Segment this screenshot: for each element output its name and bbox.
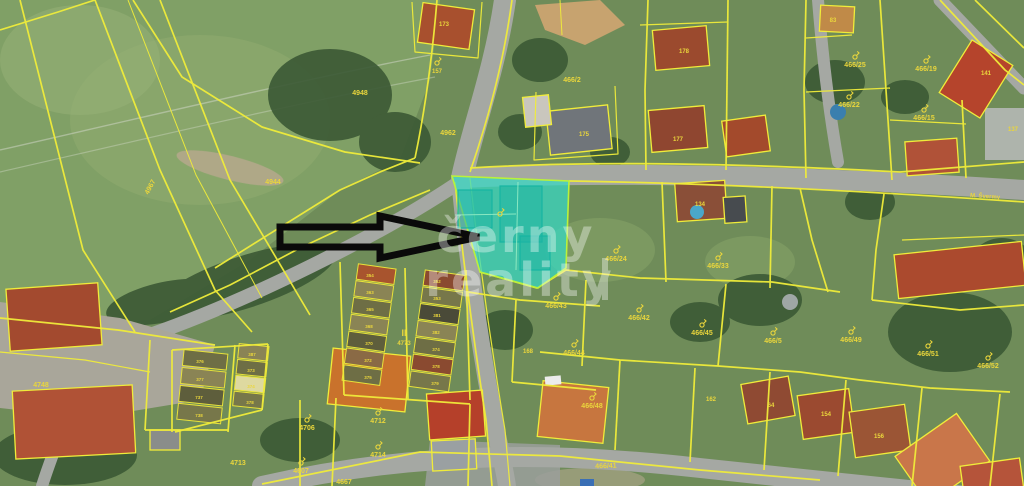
parcel-label: 178 — [679, 49, 690, 55]
svg-text:737: 737 — [195, 395, 203, 400]
svg-text:379: 379 — [431, 381, 439, 386]
svg-text:162: 162 — [706, 397, 717, 403]
svg-text:382: 382 — [432, 330, 440, 335]
pond — [782, 294, 798, 310]
building-roof — [150, 430, 180, 450]
svg-text:157: 157 — [432, 69, 443, 75]
building-roof — [431, 439, 477, 471]
parcel-label: 466/41 — [595, 463, 617, 471]
parcel-label: 154 — [821, 412, 832, 418]
svg-text:137: 137 — [1008, 127, 1019, 133]
building-roof — [12, 385, 135, 459]
parcel-label: 374 — [247, 384, 255, 389]
parcel-label: 4948 — [352, 90, 368, 97]
svg-text:466/42: 466/42 — [628, 315, 650, 322]
svg-text:466/51: 466/51 — [917, 351, 939, 358]
parcel-label: 381 — [433, 313, 441, 318]
parcel-label: 373 — [247, 368, 255, 373]
svg-text:381: 381 — [433, 313, 441, 318]
svg-text:373: 373 — [247, 368, 255, 373]
svg-text:466/15: 466/15 — [913, 115, 935, 122]
svg-text:4712: 4712 — [370, 418, 386, 425]
svg-text:375: 375 — [364, 375, 372, 380]
building-roof — [426, 390, 485, 440]
svg-text:466/33: 466/33 — [707, 263, 729, 270]
svg-text:378: 378 — [432, 364, 440, 369]
svg-text:466/44: 466/44 — [563, 350, 585, 357]
svg-text:363: 363 — [366, 290, 374, 295]
parcel-label: 374 — [432, 347, 440, 352]
parcel-label: 175 — [579, 132, 590, 138]
svg-text:175: 175 — [579, 132, 590, 138]
watermark-line2: reality — [425, 253, 614, 307]
svg-text:4607: 4607 — [293, 468, 309, 475]
svg-text:II: II — [401, 328, 406, 338]
svg-text:466/48: 466/48 — [581, 403, 603, 410]
svg-text:4773: 4773 — [397, 341, 411, 347]
svg-text:4706: 4706 — [299, 425, 315, 432]
parcel-label: 354 — [366, 273, 374, 278]
svg-text:4748: 4748 — [33, 382, 49, 389]
svg-text:177: 177 — [673, 137, 684, 143]
parcel-label: 168 — [523, 349, 534, 355]
parcel-label: 379 — [431, 381, 439, 386]
parcel-label: 137 — [1008, 127, 1019, 133]
parcel-label: 134 — [695, 202, 706, 208]
watermark: černy reality — [425, 209, 614, 307]
svg-text:173: 173 — [439, 22, 450, 28]
svg-text:738: 738 — [195, 413, 203, 418]
parcel-label: 370 — [365, 341, 373, 346]
svg-text:64: 64 — [768, 403, 775, 409]
svg-text:466/41: 466/41 — [595, 463, 617, 471]
building-roof — [537, 381, 608, 444]
parcel-label: 64 — [768, 403, 775, 409]
parcel-label: 83 — [830, 18, 837, 24]
parcel-label: 4944 — [265, 179, 281, 186]
svg-text:4948: 4948 — [352, 90, 368, 97]
building-roof — [652, 26, 709, 71]
parcel-label: 368 — [365, 324, 373, 329]
svg-text:377: 377 — [196, 377, 204, 382]
svg-text:156: 156 — [874, 434, 885, 440]
parcel-label: 376 — [196, 359, 204, 364]
svg-text:354: 354 — [366, 273, 374, 278]
svg-text:4714: 4714 — [370, 452, 386, 459]
parcel-label: 4667 — [336, 479, 352, 486]
svg-text:178: 178 — [679, 49, 690, 55]
building-roof — [648, 106, 707, 153]
svg-text:4713: 4713 — [230, 460, 246, 467]
parcel-label: 738 — [195, 413, 203, 418]
building-roof — [6, 283, 102, 351]
parcel-label: 156 — [874, 434, 885, 440]
building-roof — [546, 105, 612, 155]
svg-text:378: 378 — [246, 400, 254, 405]
svg-text:154: 154 — [821, 412, 832, 418]
svg-text:466/19: 466/19 — [915, 66, 937, 73]
svg-text:374: 374 — [432, 347, 440, 352]
building-roof — [849, 404, 911, 457]
parcel-label: 173 — [439, 22, 450, 28]
cadastral-map[interactable]: 4948494449674962466/21731571751781778346… — [0, 0, 1024, 486]
svg-text:368: 368 — [365, 324, 373, 329]
svg-text:466/2: 466/2 — [563, 77, 581, 84]
svg-text:370: 370 — [365, 341, 373, 346]
svg-text:466/25: 466/25 — [844, 62, 866, 69]
parcel-label: 363 — [366, 290, 374, 295]
parcel-label: 466/2 — [563, 77, 581, 84]
parcel-label: 4773 — [397, 341, 411, 347]
watermark-bar — [602, 258, 608, 300]
parcel-label: 141 — [981, 71, 992, 77]
svg-text:466/45: 466/45 — [691, 330, 713, 337]
parcel-label: 378 — [432, 364, 440, 369]
parcel-label: 377 — [196, 377, 204, 382]
building-roof — [523, 95, 552, 128]
parcel-label: 177 — [673, 137, 684, 143]
parcel-label: 387 — [248, 352, 256, 357]
svg-text:4962: 4962 — [440, 130, 456, 137]
car — [580, 479, 594, 486]
svg-text:134: 134 — [695, 202, 706, 208]
parcel-label: 737 — [195, 395, 203, 400]
parcel-label: 4748 — [33, 382, 49, 389]
car — [545, 375, 562, 385]
svg-text:4667: 4667 — [336, 479, 352, 486]
svg-text:372: 372 — [364, 358, 372, 363]
svg-text:466/22: 466/22 — [838, 102, 860, 109]
svg-text:374: 374 — [247, 384, 255, 389]
parcel-label: 375 — [364, 375, 372, 380]
parcel-label: 365 — [366, 307, 374, 312]
svg-text:387: 387 — [248, 352, 256, 357]
parcel-label: 4713 — [230, 460, 246, 467]
svg-text:365: 365 — [366, 307, 374, 312]
parcel-label: II — [401, 328, 406, 338]
svg-text:141: 141 — [981, 71, 992, 77]
building-roof — [819, 5, 854, 33]
svg-text:4944: 4944 — [265, 179, 281, 186]
building-roof — [722, 115, 771, 157]
parcel-label: 4962 — [440, 130, 456, 137]
building-roof — [723, 196, 747, 223]
parcel-label: 382 — [432, 330, 440, 335]
svg-text:168: 168 — [523, 349, 534, 355]
svg-text:376: 376 — [196, 359, 204, 364]
svg-text:83: 83 — [830, 18, 837, 24]
svg-text:466/52: 466/52 — [977, 363, 999, 370]
svg-text:466/49: 466/49 — [840, 337, 862, 344]
parcel-label: 372 — [364, 358, 372, 363]
svg-text:466/5: 466/5 — [764, 338, 782, 345]
parcel-label: 378 — [246, 400, 254, 405]
parcel-label: 162 — [706, 397, 717, 403]
screenshot-root: 4948494449674962466/21731571751781778346… — [0, 0, 1024, 486]
